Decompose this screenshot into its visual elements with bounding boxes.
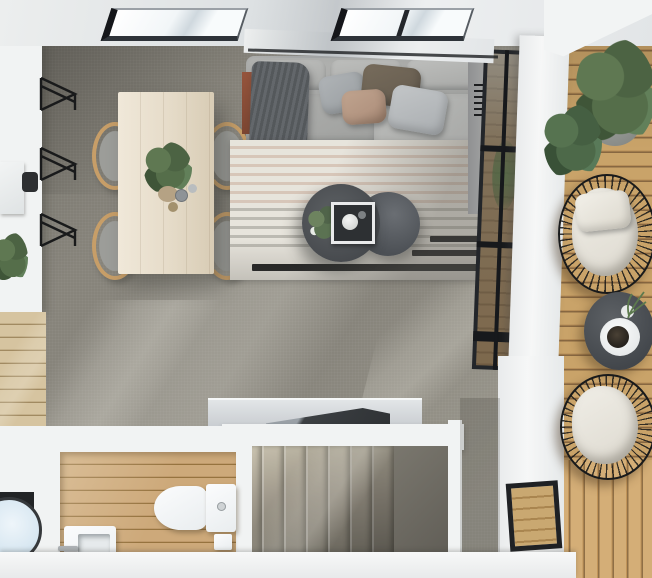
cup [176,190,187,201]
small-window [506,480,563,551]
staircase [240,446,394,558]
plant-pot [158,186,178,202]
toilet-paper-holder [214,534,232,550]
wire-stool-icon [36,210,80,276]
corner-carpet-shadow [460,398,500,558]
chair-cushion [572,386,638,464]
shrub-plant [544,104,602,180]
hallway-light [0,312,46,434]
tray-item [358,211,366,219]
cup [188,184,197,193]
stair-light [240,446,394,558]
toilet-bowl [154,486,208,530]
plant-sprig-icon [620,288,650,324]
wire-stool-icon [36,74,80,140]
flush-button [217,502,226,511]
cup [168,202,178,212]
cutting-board [0,162,24,214]
skylight-divider [396,10,409,36]
bottom-wall [0,552,576,578]
tray-vase [342,214,358,230]
skylight [101,8,249,41]
stair-landing [394,446,450,558]
faucet [58,546,78,551]
decor-tray [331,202,375,244]
skylight [331,8,475,41]
pillow-light [387,83,450,136]
coffee-cup [607,326,629,348]
floor-plan-render [0,0,652,578]
wire-stool-icon [36,144,80,210]
pillow-blush [341,89,387,126]
chair-back-pillow [574,189,632,232]
